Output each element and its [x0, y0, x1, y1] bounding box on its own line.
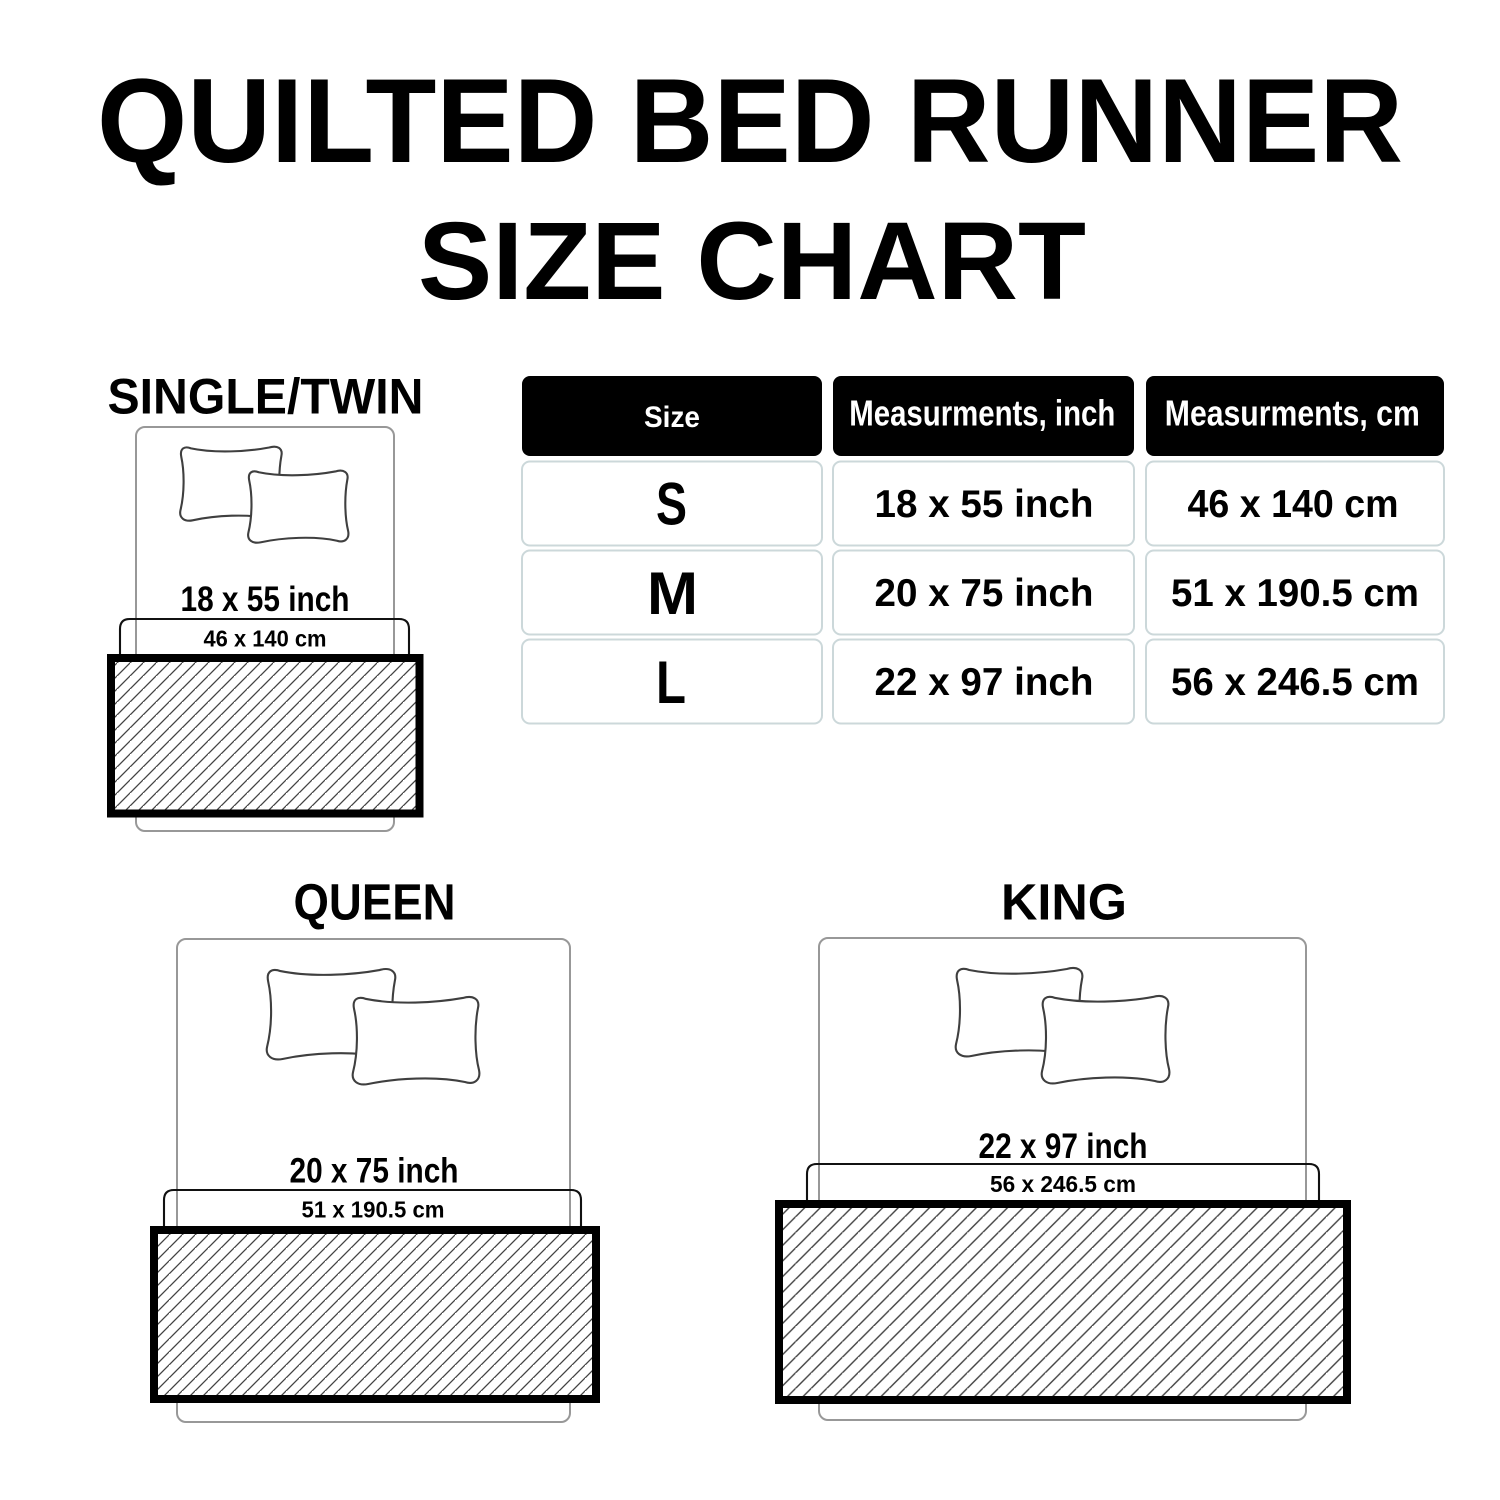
svg-text:SINGLE/TWIN: SINGLE/TWIN [108, 369, 424, 425]
svg-text:S: S [656, 471, 687, 538]
svg-text:51 x 190.5 cm: 51 x 190.5 cm [302, 1197, 445, 1223]
svg-text:18 x 55 inch: 18 x 55 inch [181, 580, 350, 619]
svg-text:QUEEN: QUEEN [294, 874, 456, 931]
svg-text:56 x 246.5 cm: 56 x 246.5 cm [990, 1171, 1136, 1197]
svg-text:Size: Size [644, 401, 700, 434]
svg-text:46 x 140 cm: 46 x 140 cm [1188, 483, 1399, 526]
svg-text:Measurments, inch: Measurments, inch [849, 393, 1115, 434]
svg-text:QUILTED BED RUNNER: QUILTED BED RUNNER [97, 54, 1403, 188]
svg-text:20 x 75 inch: 20 x 75 inch [290, 1152, 459, 1191]
svg-text:SIZE CHART: SIZE CHART [418, 200, 1086, 323]
svg-text:L: L [656, 649, 686, 716]
svg-text:56 x 246.5 cm: 56 x 246.5 cm [1171, 661, 1419, 704]
svg-text:51 x 190.5 cm: 51 x 190.5 cm [1171, 572, 1419, 615]
svg-text:Measurments, cm: Measurments, cm [1165, 393, 1420, 434]
svg-text:M: M [647, 560, 698, 627]
svg-text:22 x 97 inch: 22 x 97 inch [875, 661, 1094, 704]
svg-text:KING: KING [1001, 874, 1127, 931]
svg-text:20 x 75 inch: 20 x 75 inch [875, 572, 1094, 615]
svg-text:18 x 55 inch: 18 x 55 inch [875, 483, 1094, 526]
svg-text:22 x 97 inch: 22 x 97 inch [979, 1127, 1148, 1166]
svg-text:46 x 140 cm: 46 x 140 cm [204, 626, 327, 652]
